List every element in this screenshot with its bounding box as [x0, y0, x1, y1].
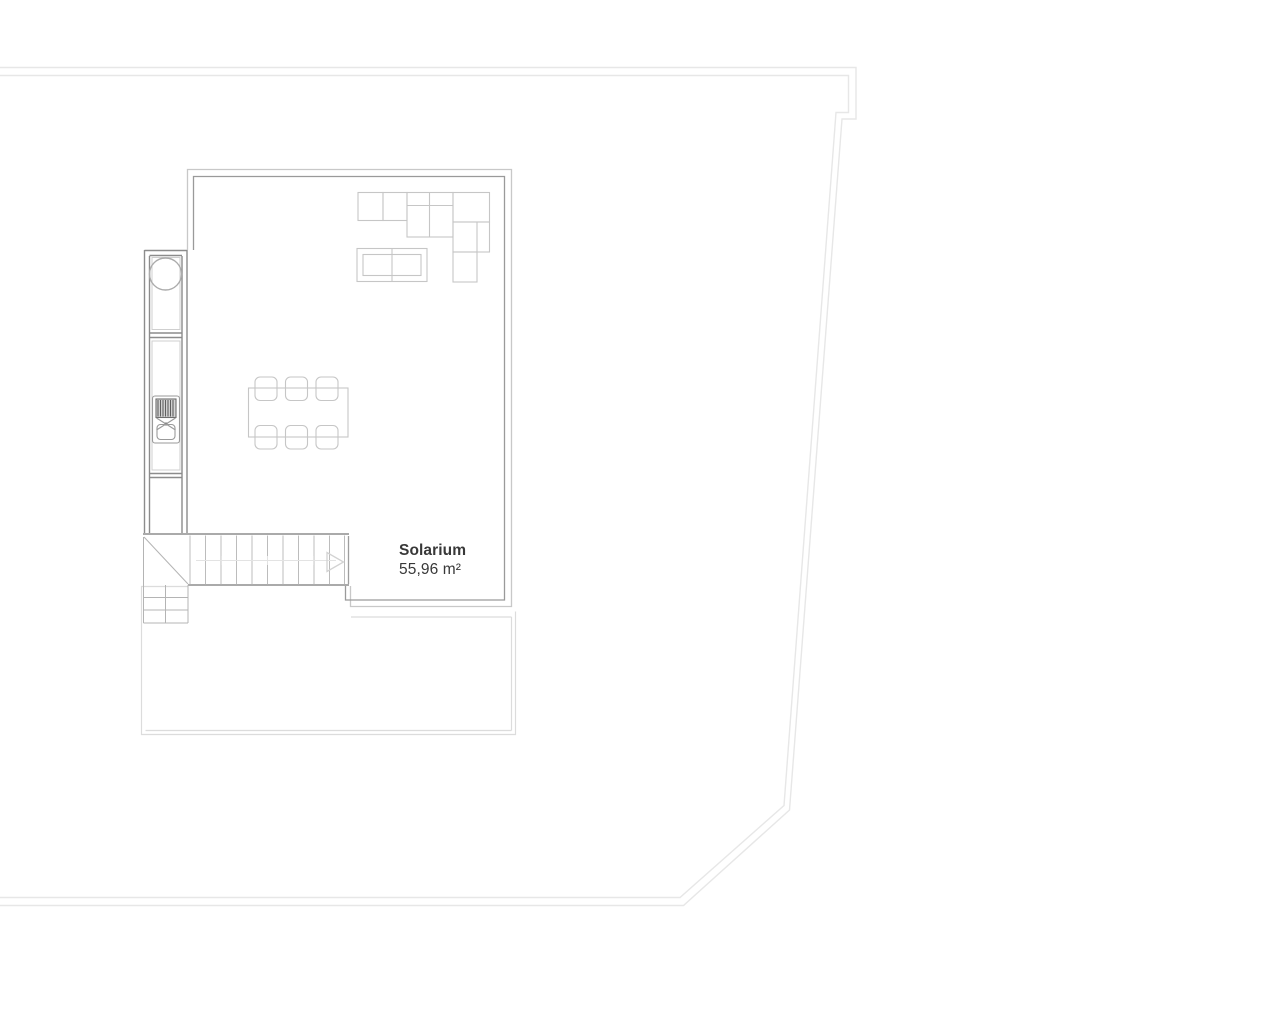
room-area: 55,96 m² — [399, 561, 466, 580]
plot-boundary — [0, 68, 856, 906]
terrace-outer-outline — [142, 587, 516, 735]
sofa-module — [358, 193, 383, 221]
winder-diagonal — [144, 537, 188, 584]
dining-set — [249, 377, 349, 449]
strip-upper-compartment — [152, 258, 180, 330]
room-name: Solarium — [399, 542, 466, 561]
stair-guide-marks — [196, 556, 336, 565]
plot-boundary-outer — [0, 68, 856, 906]
plot-boundary-inner — [0, 76, 849, 898]
bbq-unit — [153, 396, 180, 443]
sink-basin — [157, 425, 175, 440]
stair-edges — [143, 534, 349, 585]
sofa-module — [383, 193, 407, 221]
dining-chair — [286, 377, 308, 401]
coffee-table — [357, 249, 427, 282]
dining-chair — [255, 377, 277, 401]
kitchen-strip-walls — [145, 250, 188, 533]
staircase — [143, 534, 349, 623]
round-table-circle — [150, 258, 182, 290]
winder-steps — [144, 537, 189, 623]
grill-grate-bars — [158, 400, 173, 417]
sofa-module — [453, 193, 490, 223]
dining-chair — [316, 377, 338, 401]
lower-terrace — [142, 587, 516, 735]
sofa-module — [453, 252, 477, 282]
floor-plan-drawing — [0, 0, 1280, 1024]
sofa-module — [453, 222, 490, 252]
floor-plan-page: Solarium 55,96 m² — [0, 0, 1280, 1024]
round-table — [150, 258, 182, 290]
room-label: Solarium 55,96 m² — [399, 542, 466, 579]
dining-table — [249, 388, 349, 437]
corner-sofa — [358, 193, 490, 283]
